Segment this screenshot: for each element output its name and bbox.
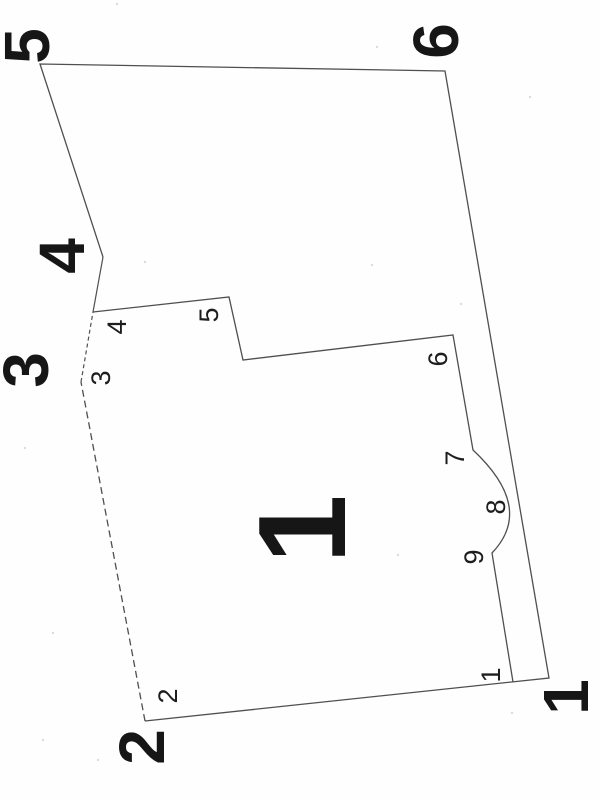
label-inner-9: 9 <box>459 549 489 564</box>
scanned-pattern-sheet: 5643211453678912 <box>0 0 600 800</box>
pattern-outlines <box>40 64 549 721</box>
scan-speck <box>371 264 373 266</box>
fold-line-dashed-lower <box>81 382 145 721</box>
scan-speck <box>116 3 118 5</box>
label-inner-3: 3 <box>86 370 116 385</box>
label-inner-8: 8 <box>481 499 511 514</box>
scan-speck <box>529 96 531 98</box>
label-inner-6: 6 <box>423 351 453 366</box>
label-outer-5: 5 <box>0 28 63 64</box>
label-outer-2: 2 <box>106 729 178 765</box>
pattern-diagram: 5643211453678912 <box>0 0 600 800</box>
scan-speck <box>397 554 399 556</box>
label-outer-4: 4 <box>26 238 98 274</box>
scan-speck <box>42 739 44 741</box>
label-inner-7: 7 <box>440 450 470 465</box>
vertex-number-labels: 5643211453678912 <box>0 23 600 765</box>
scan-speck <box>24 447 26 449</box>
scan-speck <box>460 303 462 305</box>
label-inner-2: 2 <box>153 688 183 703</box>
outer-piece-outline <box>40 64 549 721</box>
scan-speck <box>511 712 513 714</box>
label-panel-1: 1 <box>234 495 372 564</box>
label-outer-3: 3 <box>0 352 62 388</box>
scan-speck <box>144 261 146 263</box>
scan-speck <box>376 46 378 48</box>
scan-speck <box>52 632 54 634</box>
label-outer-6: 6 <box>400 23 472 59</box>
label-inner-4: 4 <box>102 319 132 334</box>
label-outer-1: 1 <box>530 679 600 715</box>
label-inner-1: 1 <box>476 667 506 682</box>
scan-speck <box>97 759 99 761</box>
label-inner-5: 5 <box>194 307 224 322</box>
